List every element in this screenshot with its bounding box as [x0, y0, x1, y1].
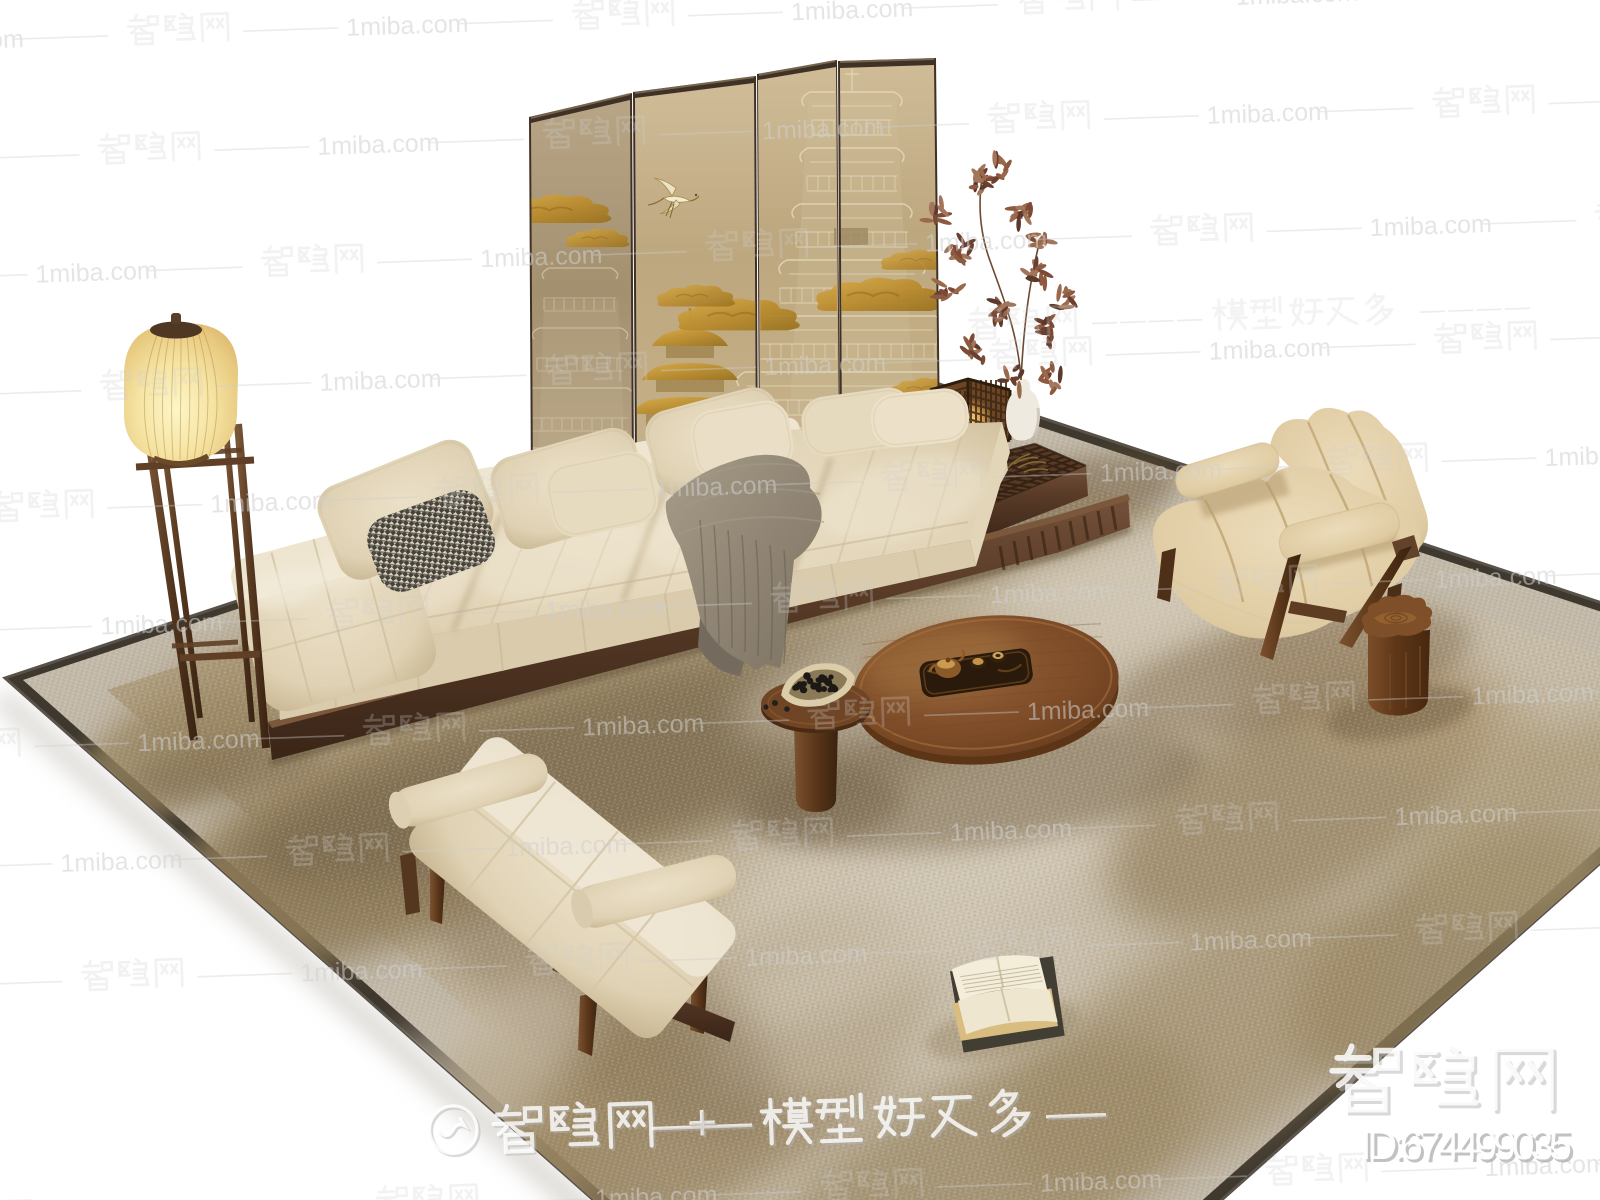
svg-text:————: ————: [212, 603, 308, 634]
svg-text:————: ————: [875, 344, 971, 375]
svg-text:————: ————: [458, 5, 554, 36]
svg-text:1miba.com: 1miba.com: [924, 225, 1047, 257]
svg-text:————: ————: [1103, 100, 1199, 131]
svg-text:————: ————: [1061, 810, 1157, 841]
svg-text:1miba.com: 1miba.com: [1206, 98, 1329, 130]
svg-text:————: ————: [249, 720, 345, 751]
svg-text:1miba.com: 1miba.com: [100, 608, 223, 640]
svg-text:————: ————: [688, 0, 784, 28]
svg-text:1miba.com: 1miba.com: [1394, 799, 1517, 831]
svg-text:————: ————: [429, 124, 525, 155]
svg-text:————: ————: [214, 131, 310, 162]
svg-text:————: ————: [996, 458, 1092, 489]
svg-text:1miba.com: 1miba.com: [582, 709, 705, 741]
svg-text:1miba.com: 1miba.com: [989, 577, 1112, 609]
svg-text:1miba.com: 1miba.com: [317, 129, 440, 161]
svg-text:1miba.com: 1miba.com: [1039, 1165, 1162, 1197]
svg-text:————: ————: [1301, 919, 1397, 950]
svg-text:————: ————: [1105, 336, 1201, 367]
svg-text:————: ————: [1596, 1145, 1600, 1176]
svg-text:————: ————: [243, 12, 339, 43]
svg-text:————: ————: [107, 489, 203, 520]
svg-text:1miba.com: 1miba.com: [1026, 694, 1149, 726]
svg-text:————: ————: [706, 1176, 802, 1200]
svg-text:————: ————: [442, 595, 538, 626]
svg-text:————: ————: [0, 848, 53, 879]
svg-text:————: ————: [13, 20, 109, 51]
svg-text:1miba.com: 1miba.com: [346, 10, 469, 42]
svg-text:1miba.com: 1miba.com: [1471, 678, 1594, 710]
svg-text:————: ————: [147, 252, 243, 283]
svg-text:————: ————: [1101, 572, 1197, 603]
svg-text:————: ————: [873, 108, 969, 139]
svg-text:————: ————: [856, 935, 952, 966]
svg-text:1miba.com: 1miba.com: [762, 113, 885, 145]
svg-text:————: ————: [1368, 681, 1464, 712]
svg-text:————: ————: [1086, 927, 1182, 958]
svg-text:—+—: —+—: [653, 1094, 755, 1155]
svg-text:————: ————: [846, 817, 942, 848]
svg-text:————: ————: [0, 375, 82, 406]
svg-text:————: ————: [766, 466, 862, 497]
svg-text:————: ————: [216, 367, 312, 398]
svg-text:————: ————: [642, 942, 738, 973]
svg-text:————: ————: [923, 696, 1019, 727]
svg-text:————: ————: [661, 352, 757, 383]
svg-text:1miba.com: 1miba.com: [1369, 210, 1492, 242]
svg-text:1miba.com: 1miba.com: [1434, 562, 1557, 594]
svg-text:————: ————: [431, 360, 527, 391]
svg-text:————: ————: [402, 833, 498, 864]
svg-text:————: ————: [34, 727, 130, 758]
svg-text:————: ————: [552, 473, 648, 504]
svg-text:————: ————: [694, 704, 790, 735]
svg-text:————: ————: [1548, 85, 1600, 116]
svg-text:————: ————: [886, 580, 982, 611]
svg-text:————: ————: [659, 116, 755, 147]
svg-text:1miba.com: 1miba.com: [319, 365, 442, 397]
svg-text:ID:674499035: ID:674499035: [1360, 1121, 1572, 1168]
svg-text:————: ————: [479, 712, 575, 743]
svg-text:1miba.com: 1miba.com: [745, 940, 868, 972]
svg-text:————: ————: [1291, 802, 1387, 833]
svg-text:————: ————: [1583, 673, 1600, 704]
svg-text:————: ————: [936, 1168, 1032, 1199]
svg-text:1miba.com: 1miba.com: [655, 471, 778, 503]
svg-text:————: ————: [821, 228, 917, 259]
svg-text:1miba.com: 1miba.com: [480, 241, 603, 273]
svg-text:————: ————: [0, 966, 63, 997]
svg-text:————: ————: [592, 236, 688, 267]
svg-text:1miba.com: 1miba.com: [137, 725, 260, 757]
svg-text:1miba.com: 1miba.com: [60, 846, 183, 878]
svg-text:————: ————: [1546, 557, 1600, 588]
svg-text:1miba.com: 1miba.com: [1544, 440, 1600, 472]
svg-text:————: ————: [412, 950, 508, 981]
svg-text:————: ————: [1138, 689, 1234, 720]
svg-text:————: ————: [0, 139, 80, 170]
svg-text:————: ————: [492, 1184, 588, 1200]
svg-text:1miba.com: 1miba.com: [949, 815, 1072, 847]
svg-text:————: ————: [1550, 321, 1600, 352]
svg-text:————: ————: [1318, 93, 1414, 124]
svg-text:1miba.com: 1miba.com: [791, 0, 914, 26]
svg-text:————: ————: [172, 841, 268, 872]
svg-text:1miba.com: 1miba.com: [545, 593, 668, 625]
svg-text:1miba.com: 1miba.com: [1099, 455, 1222, 487]
svg-text:1miba.com: 1miba.com: [595, 1181, 718, 1200]
svg-text:————: ————: [617, 825, 713, 856]
svg-text:1miba.com: 1miba.com: [1208, 334, 1331, 366]
svg-text:————: ————: [1481, 205, 1577, 236]
svg-text:1miba.com: 1miba.com: [300, 955, 423, 987]
svg-text:————: ————: [1441, 442, 1537, 473]
svg-text:————: ————: [1211, 450, 1307, 481]
svg-text:————: ————: [377, 244, 473, 275]
svg-text:————: ————: [197, 958, 293, 989]
svg-text:————: ————: [322, 481, 418, 512]
svg-text:————: ————: [1331, 564, 1427, 595]
svg-text:——: ——: [1047, 1084, 1109, 1144]
svg-text:————: ————: [0, 259, 28, 290]
svg-text:————: ————: [657, 588, 753, 619]
svg-text:1miba.com: 1miba.com: [35, 257, 158, 289]
svg-text:————: ————: [902, 0, 998, 20]
svg-text:————: ————: [1320, 329, 1416, 360]
svg-text:————: ————: [0, 611, 93, 642]
svg-text:1miba.com: 1miba.com: [1189, 924, 1312, 956]
svg-text:————: ————: [1531, 911, 1600, 942]
svg-text:————: ————: [1506, 794, 1600, 825]
svg-text:1miba.com: 1miba.com: [505, 830, 628, 862]
svg-text:1miba.com: 1miba.com: [764, 349, 887, 381]
svg-text:1miba.com: 1miba.com: [210, 486, 333, 518]
svg-text:————: ————: [1151, 1160, 1247, 1191]
svg-text:————: ————: [1266, 212, 1362, 243]
svg-text:————: ————: [1036, 220, 1132, 251]
